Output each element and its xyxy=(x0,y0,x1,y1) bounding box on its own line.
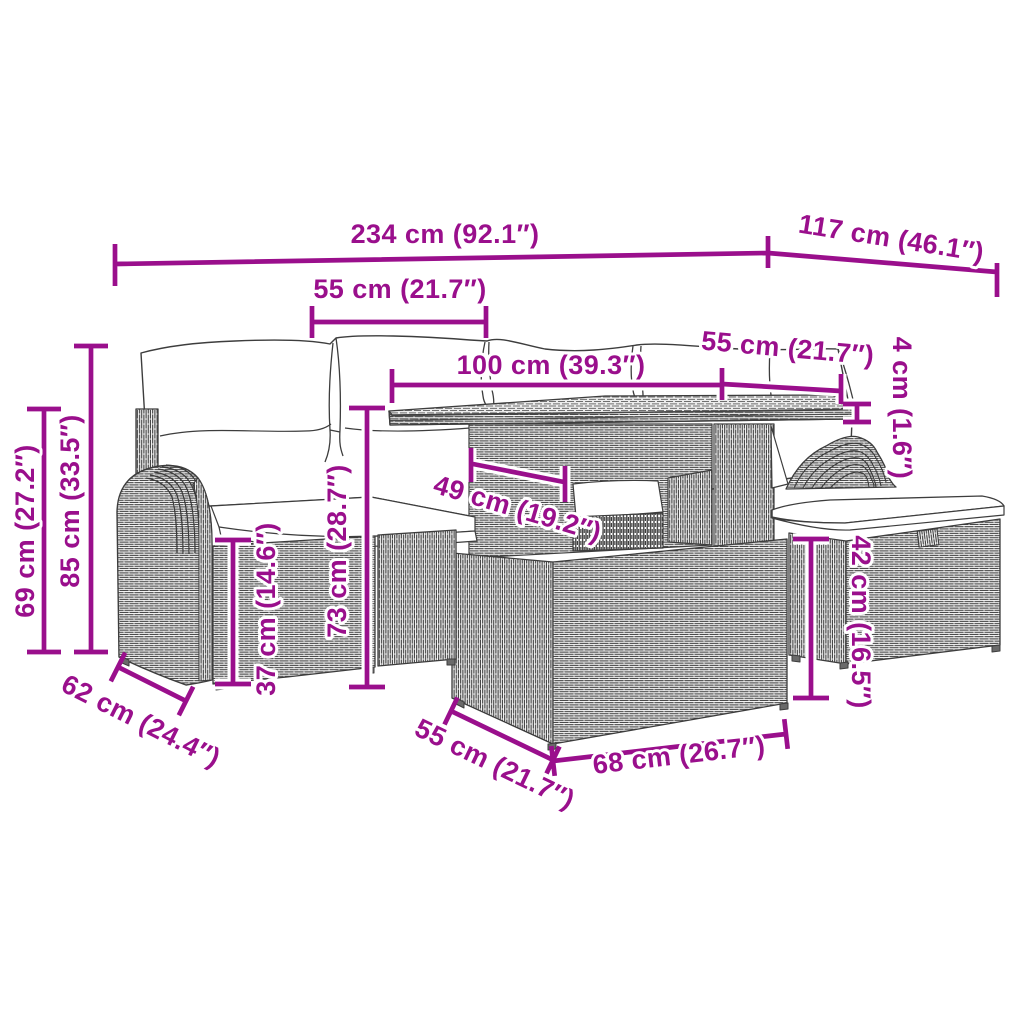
svg-text:4 cm (1.6″): 4 cm (1.6″) xyxy=(887,337,917,479)
svg-text:55 cm (21.7″): 55 cm (21.7″) xyxy=(313,274,486,304)
svg-text:37 cm (14.6″): 37 cm (14.6″) xyxy=(251,522,281,695)
svg-text:85 cm (33.5″): 85 cm (33.5″) xyxy=(55,414,85,587)
svg-text:100 cm (39.3″): 100 cm (39.3″) xyxy=(457,350,646,380)
svg-text:234 cm (92.1″): 234 cm (92.1″) xyxy=(351,219,540,249)
svg-text:73 cm (28.7″): 73 cm (28.7″) xyxy=(322,464,352,637)
svg-text:69 cm (27.2″): 69 cm (27.2″) xyxy=(10,444,40,617)
svg-text:42 cm (16.5″): 42 cm (16.5″) xyxy=(846,535,876,708)
